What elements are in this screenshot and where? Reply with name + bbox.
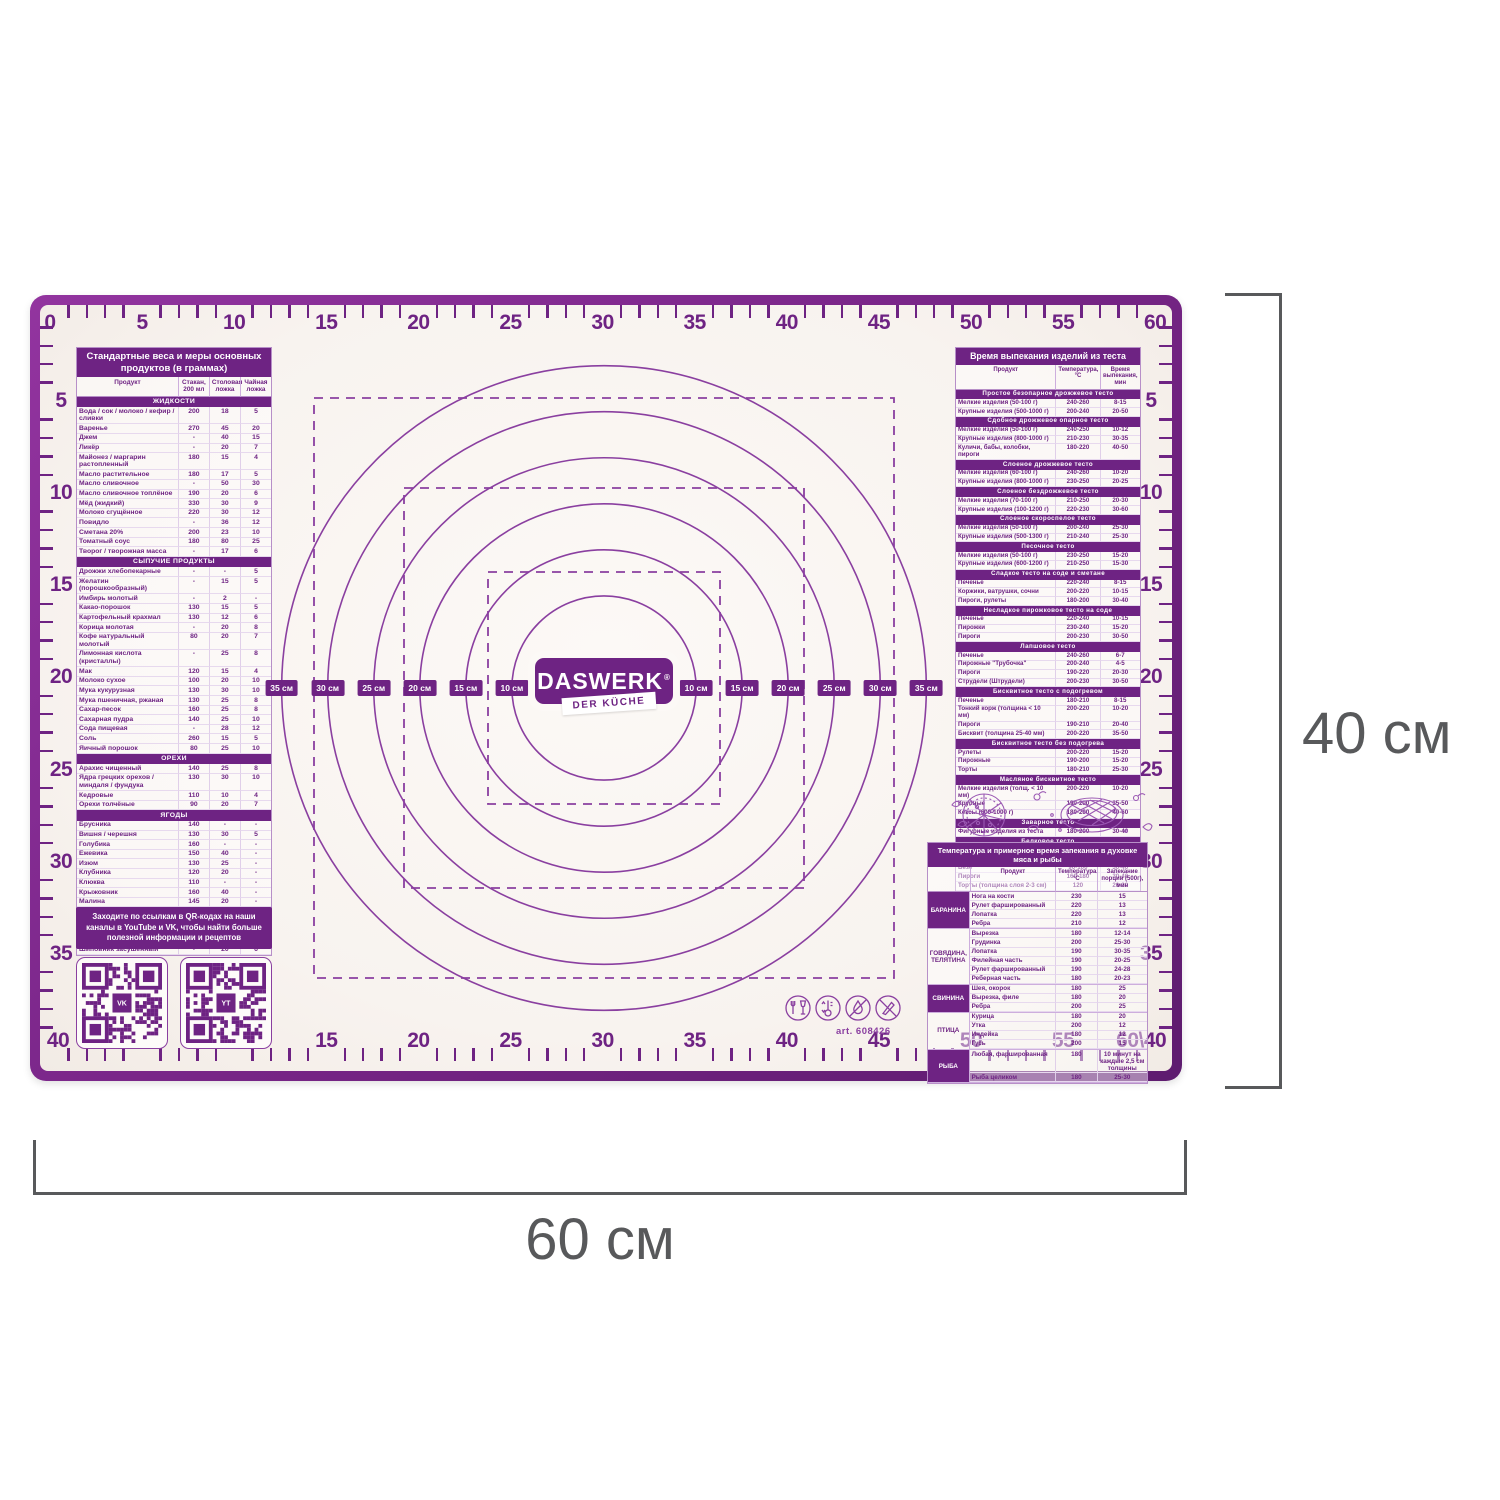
table-cell: 20 xyxy=(209,633,240,650)
no-open-flame-icon xyxy=(844,994,872,1022)
ruler-number-left: 5 xyxy=(55,389,66,413)
table-cell: 20 xyxy=(1097,1013,1147,1022)
ruler-tick-left xyxy=(40,326,53,328)
table-cell: 190 xyxy=(1055,948,1097,957)
table-cell: Тонкий корж (толщина < 10 мм) xyxy=(956,706,1055,722)
table-cell: Яичный порошок xyxy=(77,744,178,754)
ruler-tick-top xyxy=(159,305,161,318)
ruler-tick-right xyxy=(1159,934,1172,936)
ruler-tick-bottom xyxy=(454,1048,456,1061)
table-cell: 12 xyxy=(1097,1031,1147,1040)
table-cell: Пироги, рулеты xyxy=(956,597,1055,606)
table-row: Масло сливочное топлёное190206 xyxy=(77,490,271,500)
ruler-tick-bottom xyxy=(159,1048,161,1061)
table-cell: Голубика xyxy=(77,840,178,850)
ruler-tick-bottom xyxy=(288,1048,290,1061)
table-cell: Лопатка xyxy=(970,948,1055,957)
table-cell: 20 xyxy=(209,898,240,908)
table-cell: 40 xyxy=(209,850,240,860)
table-cell: 160 xyxy=(178,888,209,898)
ruler-tick-top xyxy=(1007,305,1009,318)
ruler-tick-top xyxy=(1043,305,1045,318)
section-header: ОРЕХИ xyxy=(77,754,271,765)
weights-table-title: Стандартные веса и меры основных продукт… xyxy=(77,348,271,377)
table-cell: 30-60 xyxy=(1100,506,1140,515)
table-cell: 40 xyxy=(209,888,240,898)
table-row: Индейка18012 xyxy=(970,1031,1147,1040)
width-dimension-label: 60 см xyxy=(525,1206,675,1273)
ruler-tick-bottom xyxy=(196,1048,198,1061)
ruler-tick-top xyxy=(362,305,364,318)
ruler-tick-bottom xyxy=(270,1048,272,1061)
table-cell: Клюква xyxy=(77,879,178,889)
table-cell: 25 xyxy=(209,715,240,725)
table-cell: 18 xyxy=(209,407,240,424)
table-row: Крупные изделия (500-1300 г)210-24025-30 xyxy=(956,534,1140,543)
table-cell: 200-220 xyxy=(1055,706,1099,722)
table-row: Бисквит (толщина 25-40 мм)200-22035-50 xyxy=(956,730,1140,739)
table-cell: Вырезка, филе xyxy=(970,994,1055,1003)
table-row: Ядра грецких орехов / миндаля / фундука1… xyxy=(77,774,271,791)
ruler-tick-right xyxy=(1159,731,1172,733)
table-cell: 4 xyxy=(240,453,271,470)
ruler-tick-top xyxy=(528,305,530,318)
vk-qr-code: VK xyxy=(76,957,168,1049)
ruler-tick-right xyxy=(1159,971,1172,973)
meat-group: СВИНИНАШея, окорок18025Вырезка, филе1802… xyxy=(928,985,1147,1013)
table-cell: 180 xyxy=(1055,929,1097,938)
ruler-tick-top xyxy=(712,305,714,318)
table-cell: 160 xyxy=(178,840,209,850)
ruler-tick-left xyxy=(40,529,53,531)
table-cell: 15 xyxy=(209,453,240,470)
ruler-tick-top xyxy=(749,305,751,318)
ruler-tick-top xyxy=(804,305,806,318)
ruler-tick-top xyxy=(1099,305,1101,318)
table-cell: - xyxy=(178,567,209,577)
table-cell: 30-40 xyxy=(1100,597,1140,606)
brand-name: DASWERK® xyxy=(537,668,671,695)
table-cell: 220-230 xyxy=(1055,506,1099,515)
table-row: Арахис чищенный140258 xyxy=(77,764,271,774)
ruler-number-bottom: 40 xyxy=(776,1029,798,1053)
ruler-tick-top xyxy=(472,305,474,318)
table-row: Крупные изделия (500-1000 г)200-24020-50 xyxy=(956,408,1140,417)
ruler-number-top: 45 xyxy=(868,311,890,335)
ruler-tick-right xyxy=(1159,474,1172,476)
table-row: Ребра20025 xyxy=(970,1003,1147,1012)
table-cell: 140 xyxy=(178,715,209,725)
ruler-tick-bottom xyxy=(822,1048,824,1061)
table-cell: Кедровые xyxy=(77,791,178,801)
table-cell: 190 xyxy=(1055,957,1097,966)
table-cell: 110 xyxy=(178,791,209,801)
ruler-tick-bottom xyxy=(583,1048,585,1061)
table-cell: 180 xyxy=(1055,1073,1097,1082)
table-cell: 90 xyxy=(178,801,209,811)
table-row: Джем-4015 xyxy=(77,434,271,444)
ruler-tick-top xyxy=(307,305,309,318)
table-row: Тонкий корж (толщина < 10 мм)200-22010-2… xyxy=(956,706,1140,722)
table-row: Рулет фаршированный19024-28 xyxy=(970,966,1147,975)
table-cell: Мелкие изделия (70-100 г) xyxy=(956,497,1055,506)
table-row: Шея, окорок18025 xyxy=(970,985,1147,994)
table-cell: 200-240 xyxy=(1055,408,1099,417)
ruler-tick-right xyxy=(1159,1008,1172,1010)
table-cell: 36 xyxy=(209,518,240,528)
table-cell: 23 xyxy=(209,528,240,538)
table-row: Реберная часть18020-23 xyxy=(970,975,1147,984)
ruler-tick-bottom xyxy=(178,1048,180,1061)
table-row: Яичный порошок802510 xyxy=(77,744,271,754)
meat-group-label: СВИНИНА xyxy=(928,985,970,1012)
ruler-number-left: 25 xyxy=(50,758,72,782)
table-cell: 12 xyxy=(209,614,240,624)
table-row: Мак120154 xyxy=(77,667,271,677)
table-cell: 10 минут на каждые 2,5 см толщины xyxy=(1097,1050,1147,1073)
meat-group-label: РЫБА xyxy=(928,1050,970,1082)
table-cell: - xyxy=(209,821,240,831)
ruler-tick-right xyxy=(1159,566,1172,568)
table-cell: Ядра грецких орехов / миндаля / фундука xyxy=(77,774,178,791)
table-cell: 4 xyxy=(240,667,271,677)
table-row: Изюм13025- xyxy=(77,859,271,869)
qr-caption: Заходите по ссылкам в QR-кодах на наши к… xyxy=(76,907,272,949)
table-cell: Бисквит (толщина 25-40 мм) xyxy=(956,730,1055,739)
table-cell: 200-230 xyxy=(1055,679,1099,688)
table-row: Повидло-3612 xyxy=(77,518,271,528)
table-cell: 30-50 xyxy=(1100,633,1140,642)
table-cell: 180 xyxy=(178,470,209,480)
table-cell: Рулет фаршированный xyxy=(970,901,1055,910)
table-row: Ликёр-207 xyxy=(77,444,271,454)
circle-diameter-badge: 30 см xyxy=(311,680,344,696)
table-cell: 200 xyxy=(178,407,209,424)
table-cell: Струдели (Штрудели) xyxy=(956,679,1055,688)
table-cell: Коржики, ватрушки, сочни xyxy=(956,588,1055,597)
table-cell: Любая, фаршированная xyxy=(970,1050,1055,1073)
table-row: Желатин (порошкообразный)-155 xyxy=(77,577,271,594)
ruler-tick-left xyxy=(40,805,53,807)
table-cell: Вишня / черешня xyxy=(77,831,178,841)
table-cell: Шея, окорок xyxy=(970,985,1055,994)
table-cell: - xyxy=(240,888,271,898)
table-cell: Варенье xyxy=(77,424,178,434)
ruler-tick-left xyxy=(40,842,53,844)
table-cell: 8-15 xyxy=(1100,399,1140,408)
circle-diameter-badge: 30 см xyxy=(864,680,897,696)
table-cell: 210-250 xyxy=(1055,561,1099,570)
ruler-tick-bottom xyxy=(491,1048,493,1061)
table-cell: 190 xyxy=(1055,966,1097,975)
ruler-tick-top xyxy=(380,305,382,318)
table-cell: - xyxy=(209,567,240,577)
ruler-tick-top xyxy=(657,305,659,318)
meat-group-label: БАРАНИНА xyxy=(928,892,970,928)
table-cell: 180-210 xyxy=(1055,767,1099,776)
table-row: Брусника140-- xyxy=(77,821,271,831)
table-row: Сахар-песок160258 xyxy=(77,706,271,716)
table-cell: 220 xyxy=(1055,901,1097,910)
roasting-table-title: Температура и примерное время запекания … xyxy=(928,843,1147,867)
table-row: Соль260155 xyxy=(77,734,271,744)
table-row: Пироги200-23030-50 xyxy=(956,633,1140,642)
ruler-tick-top xyxy=(178,305,180,318)
section-header: Песочное тесто xyxy=(956,542,1140,552)
ruler-number-right: 20 xyxy=(1140,665,1162,689)
table-cell: 200-220 xyxy=(1055,730,1099,739)
table-cell: 5 xyxy=(240,577,271,594)
table-cell: Арахис чищенный xyxy=(77,764,178,774)
ruler-tick-right xyxy=(1159,437,1172,439)
table-row: Кедровые110104 xyxy=(77,791,271,801)
ruler-number-right: 15 xyxy=(1140,573,1162,597)
column-header: Столовая ложка xyxy=(209,377,240,396)
table-cell: - xyxy=(209,840,240,850)
table-row: Клубника12020- xyxy=(77,869,271,879)
ruler-number-bottom: 20 xyxy=(407,1029,429,1053)
ruler-tick-left xyxy=(40,547,53,549)
table-cell: 5 xyxy=(240,470,271,480)
table-cell: 7 xyxy=(240,444,271,454)
ruler-tick-top xyxy=(859,305,861,318)
ruler-tick-right xyxy=(1159,695,1172,697)
table-cell: Крупные изделия (800-1000 г) xyxy=(956,479,1055,488)
meat-group: БАРАНИНАНога на кости23015Рулет фарширов… xyxy=(928,892,1147,929)
ruler-tick-bottom xyxy=(730,1048,732,1061)
table-cell: Дрожжи хлебопекарные xyxy=(77,567,178,577)
ruler-number-top: 20 xyxy=(407,311,429,335)
ruler-tick-left xyxy=(40,455,53,457)
table-cell: Утка xyxy=(970,1022,1055,1031)
no-knife-icon xyxy=(874,994,902,1022)
ruler-tick-right xyxy=(1159,1026,1172,1028)
ruler-number-top: 35 xyxy=(684,311,706,335)
ruler-tick-right xyxy=(1159,547,1172,549)
ruler-tick-left xyxy=(40,658,53,660)
table-cell: 220 xyxy=(178,509,209,519)
ruler-tick-left xyxy=(40,989,53,991)
table-cell: Крупные изделия (500-1000 г) xyxy=(956,408,1055,417)
table-row: Вода / сок / молоко / кефир / сливки2001… xyxy=(77,407,271,424)
table-cell: Джем xyxy=(77,434,178,444)
table-row: Крупные изделия (800-1000 г)230-25020-25 xyxy=(956,479,1140,488)
table-cell: Филейная часть xyxy=(970,957,1055,966)
ruler-tick-left xyxy=(40,916,53,918)
ruler-number-top: 10 xyxy=(223,311,245,335)
ruler-tick-bottom xyxy=(215,1048,217,1061)
ruler-tick-top xyxy=(896,305,898,318)
table-cell: 110 xyxy=(178,879,209,889)
table-cell: Мука кукурузная xyxy=(77,686,178,696)
table-cell: Ежевика xyxy=(77,850,178,860)
section-header: Лапшовое тесто xyxy=(956,642,1140,652)
table-cell: 270 xyxy=(178,424,209,434)
table-cell: 13 xyxy=(1097,901,1147,910)
table-cell: Орехи толчёные xyxy=(77,801,178,811)
ruler-tick-bottom xyxy=(841,1048,843,1061)
ruler-number-top: 30 xyxy=(591,311,613,335)
table-cell: Курица xyxy=(970,1013,1055,1022)
ruler-tick-left xyxy=(40,345,53,347)
table-cell: 25-30 xyxy=(1100,534,1140,543)
table-row: Лопатка22013 xyxy=(970,910,1147,919)
table-cell: Масло растительное xyxy=(77,470,178,480)
ruler-tick-bottom xyxy=(104,1048,106,1061)
table-cell: 25-30 xyxy=(1100,767,1140,776)
table-cell: 140 xyxy=(178,764,209,774)
baking-table-header: ПродуктТемпература, °СВремя выпекания, м… xyxy=(956,365,1140,390)
table-cell: 10-20 xyxy=(1100,706,1140,722)
table-cell: 25 xyxy=(209,764,240,774)
circle-diameter-badge: 15 см xyxy=(726,680,759,696)
table-row: Клюква110-- xyxy=(77,879,271,889)
table-cell: 20 xyxy=(209,677,240,687)
table-cell: 20 xyxy=(209,623,240,633)
ruler-tick-right xyxy=(1159,345,1172,347)
ruler-tick-bottom xyxy=(436,1048,438,1061)
meat-group: РЫБАЛюбая, фаршированная18010 минут на к… xyxy=(928,1050,1147,1083)
ruler-tick-right xyxy=(1159,363,1172,365)
table-cell: 20 xyxy=(240,424,271,434)
ruler-tick-bottom xyxy=(362,1048,364,1061)
glass-fork-icon xyxy=(784,994,812,1022)
ruler-tick-right xyxy=(1159,326,1172,328)
table-cell: Сахар-песок xyxy=(77,706,178,716)
ruler-tick-left xyxy=(40,824,53,826)
product-diagram-page: { "dimensions": { "height_label": "40 см… xyxy=(0,0,1500,1500)
ruler-tick-bottom xyxy=(122,1048,124,1061)
table-cell: Корица молотая xyxy=(77,623,178,633)
width-dimension-bracket xyxy=(33,1140,1187,1195)
table-row: Томатный соус1808025 xyxy=(77,538,271,548)
table-cell: 180 xyxy=(1055,994,1097,1003)
table-cell: Майонез / маргарин растопленный xyxy=(77,453,178,470)
ruler-tick-bottom xyxy=(472,1048,474,1061)
table-cell: 25 xyxy=(209,744,240,754)
table-cell: - xyxy=(240,898,271,908)
ruler-number-top: 5 xyxy=(137,311,148,335)
table-row: Грудинка20025-30 xyxy=(970,938,1147,947)
ruler-tick-right xyxy=(1159,713,1172,715)
table-cell: - xyxy=(240,594,271,604)
table-cell: 30-35 xyxy=(1097,948,1147,957)
ruler-tick-top xyxy=(638,305,640,318)
table-row: Лопатка19030-35 xyxy=(970,948,1147,957)
ruler-number-top: 0 xyxy=(44,311,55,335)
ruler-tick-top xyxy=(565,305,567,318)
table-cell: - xyxy=(178,444,209,454)
table-cell: 25 xyxy=(1097,985,1147,994)
table-cell: Гусь xyxy=(970,1040,1055,1049)
table-cell: - xyxy=(240,850,271,860)
table-cell: - xyxy=(178,434,209,444)
table-cell: 7 xyxy=(240,633,271,650)
meat-group-label: ГОВЯДИНА, ТЕЛЯТИНА xyxy=(928,929,970,983)
thermometer-icon xyxy=(814,994,842,1022)
ruler-number-bottom: 35 xyxy=(684,1029,706,1053)
registered-mark: ® xyxy=(664,673,671,682)
table-row: Крупные изделия (100-1200 г)220-23030-60 xyxy=(956,506,1140,515)
ruler-tick-right xyxy=(1159,897,1172,899)
table-cell: Крупные изделия (600-1200 г) xyxy=(956,561,1055,570)
table-cell: 180 xyxy=(1055,985,1097,994)
table-row: Филейная часть19020-25 xyxy=(970,957,1147,966)
section-header: СЫПУЧИЕ ПРОДУКТЫ xyxy=(77,557,271,568)
table-cell: 120 xyxy=(178,869,209,879)
ruler-number-right: 25 xyxy=(1140,758,1162,782)
ruler-number-top: 40 xyxy=(776,311,798,335)
table-cell: 8 xyxy=(240,623,271,633)
ruler-tick-top xyxy=(104,305,106,318)
table-row: Молоко сухое1002010 xyxy=(77,677,271,687)
table-cell: 160 xyxy=(178,706,209,716)
ruler-tick-top xyxy=(988,305,990,318)
table-row: Голубика160-- xyxy=(77,840,271,850)
ruler-tick-top xyxy=(915,305,917,318)
ruler-tick-right xyxy=(1159,418,1172,420)
ruler-tick-top xyxy=(1025,305,1027,318)
table-cell: 180 xyxy=(178,453,209,470)
qr-block: Заходите по ссылкам в QR-кодах на наши к… xyxy=(76,907,272,1049)
table-cell: 25 xyxy=(1097,1003,1147,1012)
ruler-tick-top xyxy=(1117,305,1119,318)
table-cell: Реберная часть xyxy=(970,975,1055,984)
table-cell: Какао-порошок xyxy=(77,604,178,614)
table-row: Мука пшеничная, ржаная130258 xyxy=(77,696,271,706)
table-cell: 20 xyxy=(209,801,240,811)
table-cell: 12 xyxy=(240,518,271,528)
table-cell: 210-250 xyxy=(1055,497,1099,506)
circle-diameter-badge: 25 см xyxy=(357,680,390,696)
table-cell: Грудинка xyxy=(970,938,1055,947)
article-number: art. 608426 xyxy=(836,1026,891,1037)
ruler-number-left: 30 xyxy=(50,850,72,874)
table-cell: 180 xyxy=(1055,1050,1097,1073)
table-cell: 6 xyxy=(240,614,271,624)
table-cell: Имбирь молотый xyxy=(77,594,178,604)
ruler-tick-bottom xyxy=(546,1048,548,1061)
table-row: Любая, фаршированная18010 минут на кажды… xyxy=(970,1050,1147,1073)
table-cell: Ребра xyxy=(970,919,1055,928)
column-header: Продукт xyxy=(970,867,1055,892)
table-cell: Повидло xyxy=(77,518,178,528)
ruler-tick-right xyxy=(1159,842,1172,844)
table-row: Сметана 20%2002310 xyxy=(77,528,271,538)
circle-diameter-badge: 15 см xyxy=(449,680,482,696)
ruler-tick-top xyxy=(215,305,217,318)
pizza-pie-illustration xyxy=(940,785,1158,841)
table-cell: Индейка xyxy=(970,1031,1055,1040)
table-cell: Сода пищевая xyxy=(77,725,178,735)
table-row: Мелкие изделия (50-100 г)240-2608-15 xyxy=(956,399,1140,408)
table-cell: 200-220 xyxy=(1055,588,1099,597)
table-row: Рыба целиком18025-30 xyxy=(970,1073,1147,1082)
table-row: Сахарная пудра1402510 xyxy=(77,715,271,725)
ruler-tick-top xyxy=(933,305,935,318)
table-cell: 100 xyxy=(178,677,209,687)
ruler-tick-left xyxy=(40,971,53,973)
table-cell: Молоко сухое xyxy=(77,677,178,687)
ruler-tick-bottom xyxy=(749,1048,751,1061)
table-cell: 20 xyxy=(209,444,240,454)
column-header: Стакан, 200 мл xyxy=(178,377,209,396)
ruler-tick-bottom xyxy=(896,1048,898,1061)
table-cell: 30 xyxy=(209,774,240,791)
section-header: Простое безопарное дрожжевое тесто xyxy=(956,390,1140,400)
ruler-tick-top xyxy=(86,305,88,318)
ruler-number-bottom: 15 xyxy=(315,1029,337,1053)
